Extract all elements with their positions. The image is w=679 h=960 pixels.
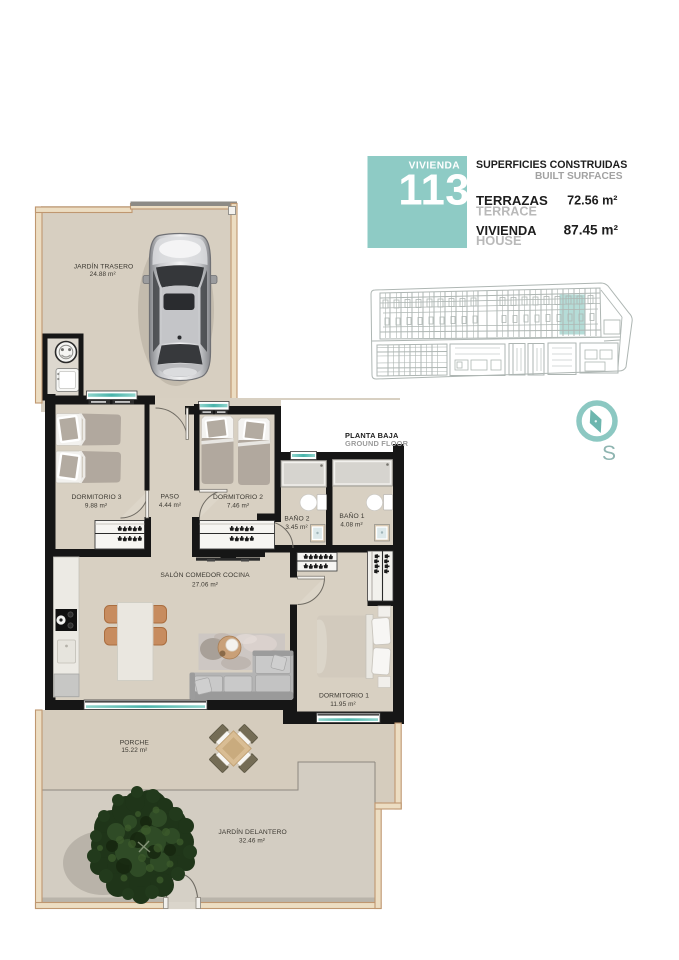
- svg-text:72.56 m²: 72.56 m²: [567, 194, 617, 208]
- svg-text:27.06 m²: 27.06 m²: [192, 582, 218, 589]
- svg-text:4.08 m²: 4.08 m²: [340, 521, 362, 528]
- svg-text:HOUSE: HOUSE: [476, 233, 522, 248]
- svg-text:S: S: [602, 442, 616, 465]
- svg-text:BUILT SURFACES: BUILT SURFACES: [535, 171, 623, 182]
- svg-text:9.88 m²: 9.88 m²: [85, 503, 107, 510]
- svg-text:DORMITORIO 3: DORMITORIO 3: [71, 494, 121, 501]
- svg-text:DORMITORIO 2: DORMITORIO 2: [213, 494, 263, 501]
- svg-text:32.46 m²: 32.46 m²: [239, 837, 265, 844]
- svg-text:3.45 m²: 3.45 m²: [285, 524, 307, 531]
- svg-text:11.95 m²: 11.95 m²: [330, 701, 356, 708]
- svg-text:4.44 m²: 4.44 m²: [159, 502, 181, 509]
- svg-text:7.46 m²: 7.46 m²: [227, 503, 249, 510]
- svg-text:SUPERFICIES CONSTRUIDAS: SUPERFICIES CONSTRUIDAS: [476, 159, 627, 171]
- svg-text:PORCHE: PORCHE: [120, 739, 150, 746]
- svg-text:PASO: PASO: [161, 493, 180, 500]
- svg-text:JARDÍN TRASERO: JARDÍN TRASERO: [74, 261, 134, 270]
- svg-text:24.88 m²: 24.88 m²: [90, 271, 116, 278]
- svg-text:BAÑO 1: BAÑO 1: [339, 511, 364, 520]
- svg-text:JARDÍN DELANTERO: JARDÍN DELANTERO: [218, 827, 287, 836]
- svg-text:DORMITORIO 1: DORMITORIO 1: [319, 692, 369, 699]
- svg-text:15.22 m²: 15.22 m²: [121, 747, 147, 754]
- svg-text:GROUND FLOOR: GROUND FLOOR: [345, 439, 409, 448]
- svg-text:87.45 m²: 87.45 m²: [564, 223, 619, 238]
- svg-text:BAÑO 2: BAÑO 2: [284, 513, 309, 522]
- svg-text:SALÓN COMEDOR COCINA: SALÓN COMEDOR COCINA: [160, 570, 250, 579]
- svg-text:TERRACE: TERRACE: [476, 204, 537, 218]
- svg-text:113: 113: [398, 167, 470, 215]
